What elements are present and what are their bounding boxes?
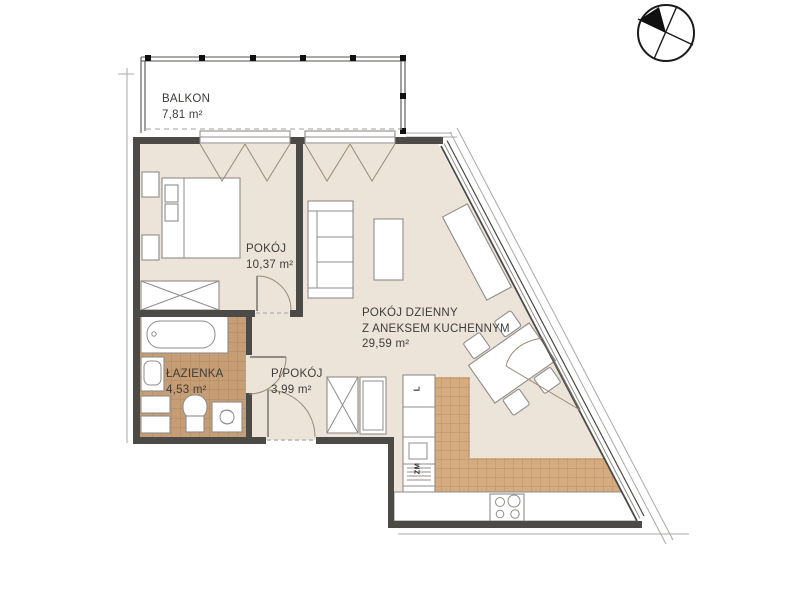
floor-plan-drawing [0,0,800,592]
wardrobe [141,281,219,310]
cooktop [490,494,524,521]
room-name: ŁAZIENKA [166,367,224,383]
room-label-pokoj: POKÓJ 10,37 m² [246,242,293,273]
sofa [308,201,353,298]
fridge-label: L [413,379,422,399]
room-label-lazienka: ŁAZIENKA 4,53 m² [166,367,224,398]
room-name-line2: Z ANEKSEM KUCHENNYM [362,322,510,338]
hall-wardrobe [327,377,358,433]
room-area: 3,99 m² [271,383,323,399]
pillow [165,185,178,202]
nightstand [142,172,159,197]
washing-machine [212,402,242,432]
dishwasher-label: ZM [413,459,422,479]
hall-cabinet [360,377,386,434]
room-name: POKÓJ [246,242,293,258]
pillow [165,204,178,221]
nightstand [142,235,159,260]
toilet [183,395,207,432]
room-area: 4,53 m² [166,383,224,399]
room-area: 7,81 m² [162,108,210,124]
room-name: P/POKÓJ [271,367,323,383]
room-label-ppokoj: P/POKÓJ 3,99 m² [271,367,323,398]
bathtub [141,316,228,353]
room-name: BALKON [162,92,210,108]
floor-plan: BALKON 7,81 m² POKÓJ 10,37 m² POKÓJ DZIE… [0,0,800,592]
room-area: 10,37 m² [246,258,293,274]
coffee-table [374,219,403,280]
north-arrow-icon [638,5,694,61]
room-label-pokoj-dzienny: POKÓJ DZIENNY Z ANEKSEM KUCHENNYM 29,59 … [362,306,510,353]
room-name: POKÓJ DZIENNY [362,306,510,322]
room-area: 29,59 m² [362,337,510,353]
bathroom-sink [141,357,164,391]
room-label-balkon: BALKON 7,81 m² [162,92,210,123]
